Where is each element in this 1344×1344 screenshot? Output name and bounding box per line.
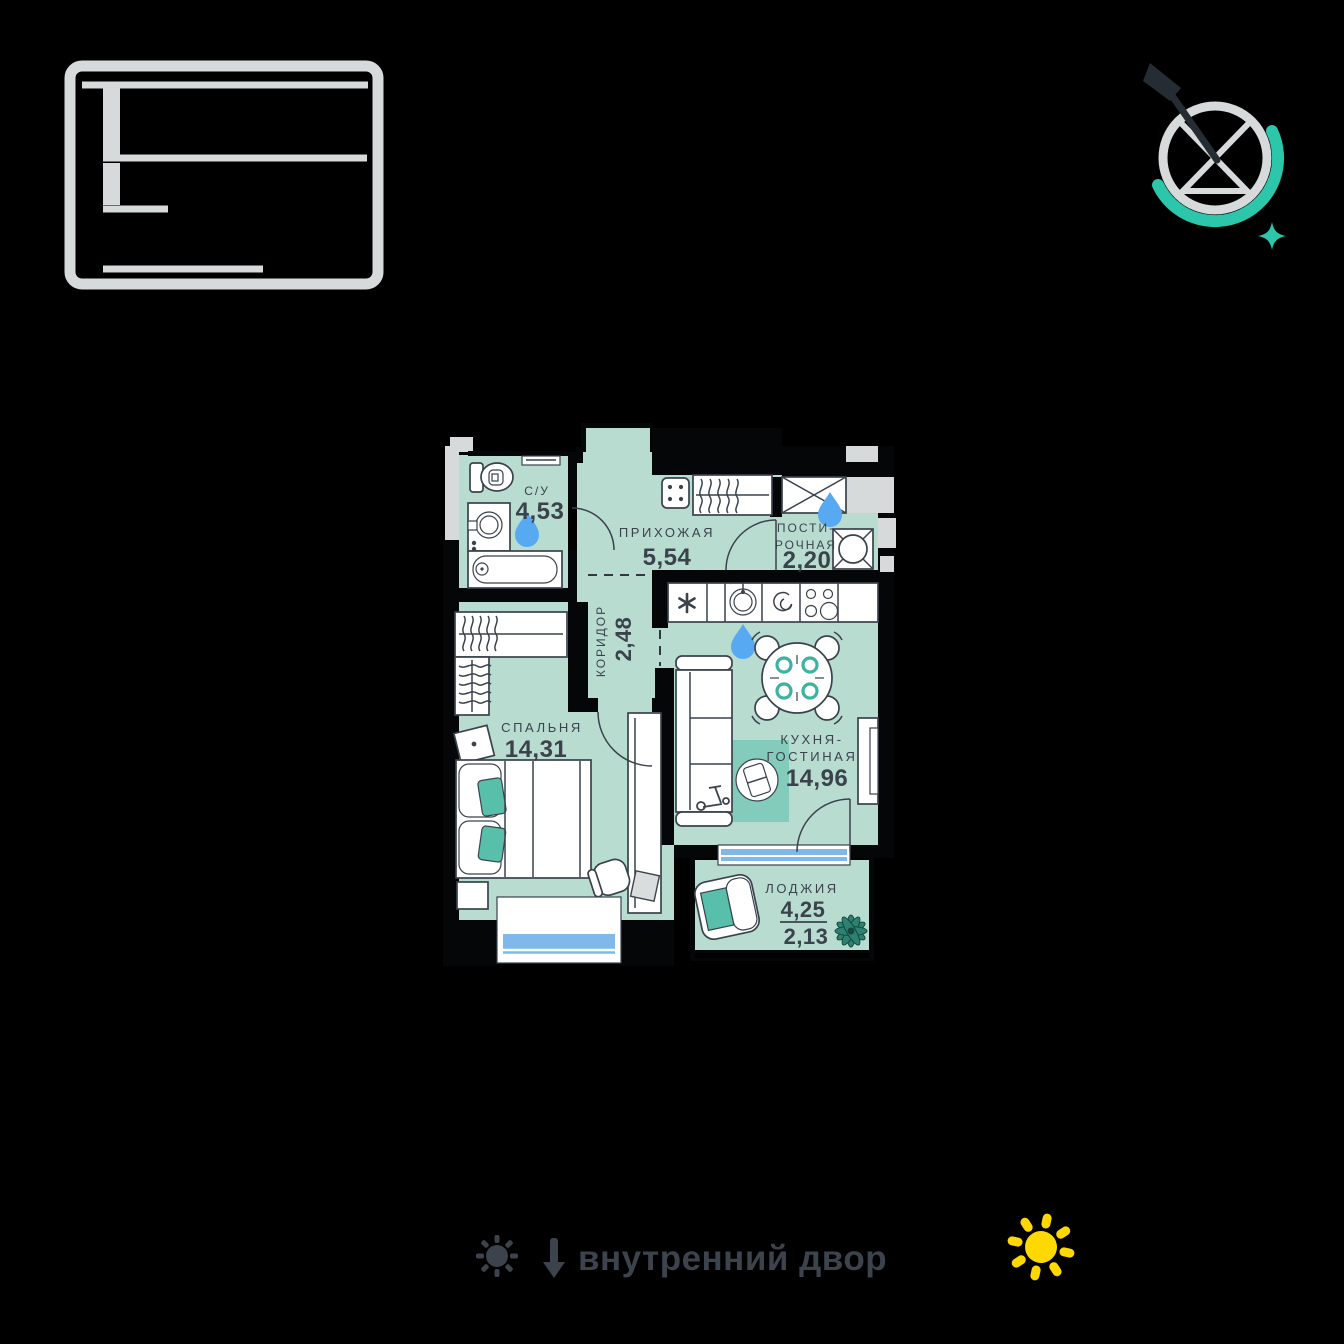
pouf-icon	[736, 759, 778, 801]
room-label-corridor: КОРИДОР	[594, 605, 608, 677]
apartment-floor-plan: С/У 4,53 ПРИХОЖАЯ 5,54 ПОСТИ- РОЧНАЯ 2,2…	[443, 423, 896, 966]
down-arrow-icon	[543, 1238, 565, 1278]
room-area-loggia-total: 4,25	[781, 897, 826, 922]
bed-icon	[456, 760, 591, 878]
room-area-hallway: 5,54	[643, 544, 692, 571]
coat-rack-icon	[693, 475, 772, 515]
room-label-laundry-1: ПОСТИ-	[777, 521, 835, 535]
window-bedroom	[497, 897, 621, 963]
room-label-hallway: ПРИХОЖАЯ	[619, 525, 715, 540]
room-area-kitchen: 14,96	[786, 765, 849, 792]
room-label-bedroom: СПАЛЬНЯ	[501, 720, 583, 735]
window-loggia	[718, 845, 850, 865]
floor-plan-page: С/У 4,53 ПРИХОЖАЯ 5,54 ПОСТИ- РОЧНАЯ 2,2…	[0, 0, 1344, 1344]
room-area-bedroom: 14,31	[505, 736, 568, 763]
compass-needle-icon	[1143, 63, 1217, 160]
bathroom-sink-icon	[468, 503, 510, 551]
nightstand-icon	[457, 882, 488, 909]
room-area-laundry: 2,20	[783, 547, 832, 574]
room-label-kitchen-1: КУХНЯ-	[780, 732, 843, 747]
electric-panel-icon	[662, 478, 689, 508]
sun-icon	[476, 1235, 518, 1277]
floor-plan-canvas: С/У 4,53 ПРИХОЖАЯ 5,54 ПОСТИ- РОЧНАЯ 2,2…	[0, 0, 1344, 1344]
wardrobe-icon	[455, 657, 491, 715]
building-section-schematic-icon	[70, 66, 378, 284]
sparkle-star-icon	[1258, 222, 1286, 250]
tv-console-icon	[858, 718, 878, 804]
dining-table-icon	[752, 632, 842, 724]
compass-icon	[1143, 63, 1286, 250]
room-label-kitchen-2: ГОСТИНАЯ	[767, 749, 858, 764]
room-label-loggia: ЛОДЖИЯ	[765, 881, 839, 896]
armchair-icon	[693, 873, 762, 942]
room-area-corridor: 2,48	[611, 617, 636, 662]
footer-caption: внутренний двор	[578, 1239, 887, 1278]
sun-icon	[1001, 1207, 1082, 1288]
wardrobe-icon	[455, 612, 567, 657]
toilet-icon	[470, 463, 513, 492]
room-area-bathroom: 4,53	[516, 498, 565, 525]
room-label-bathroom: С/У	[524, 484, 550, 498]
room-area-loggia-reduced: 2,13	[784, 924, 829, 949]
entry-notch-floor	[586, 428, 650, 454]
laptop-icon	[631, 871, 660, 901]
washing-machine-icon	[833, 529, 873, 569]
footer: внутренний двор	[476, 1207, 1081, 1288]
bathtub-icon	[468, 551, 562, 588]
